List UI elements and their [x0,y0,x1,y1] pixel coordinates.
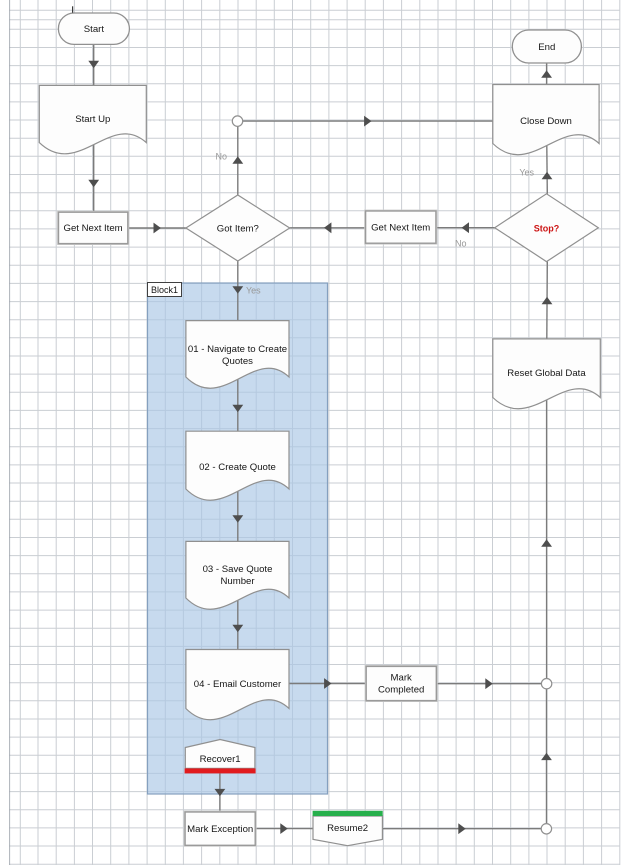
svg-text:No: No [455,239,467,249]
svg-text:02 - Create Quote: 02 - Create Quote [199,462,276,473]
svg-text:Block1: Block1 [151,285,178,295]
svg-text:Reset Global Data: Reset Global Data [507,368,586,379]
svg-text:Got Item?: Got Item? [217,224,259,235]
svg-text:01 - Navigate to Create: 01 - Navigate to Create [188,344,287,355]
svg-text:Start Up: Start Up [75,114,110,125]
svg-text:Stop?: Stop? [534,224,560,234]
svg-text:04 - Email Customer: 04 - Email Customer [194,679,282,690]
svg-text:Yes: Yes [246,286,261,296]
svg-text:Mark Exception: Mark Exception [187,824,253,835]
svg-text:Start: Start [84,24,105,35]
svg-text:03 - Save Quote: 03 - Save Quote [203,564,273,575]
svg-text:No: No [215,152,227,162]
svg-text:End: End [538,42,555,53]
svg-text:Number: Number [220,576,255,587]
svg-text:Yes: Yes [519,168,534,178]
svg-text:Completed: Completed [378,685,424,696]
svg-text:Get Next Item: Get Next Item [64,223,123,234]
svg-text:Close Down: Close Down [520,116,572,127]
svg-text:Recover1: Recover1 [200,754,241,765]
svg-text:Mark: Mark [391,673,413,684]
svg-text:Get Next Item: Get Next Item [371,223,430,234]
svg-text:Resume2: Resume2 [327,823,368,834]
svg-text:Quotes: Quotes [222,356,253,367]
